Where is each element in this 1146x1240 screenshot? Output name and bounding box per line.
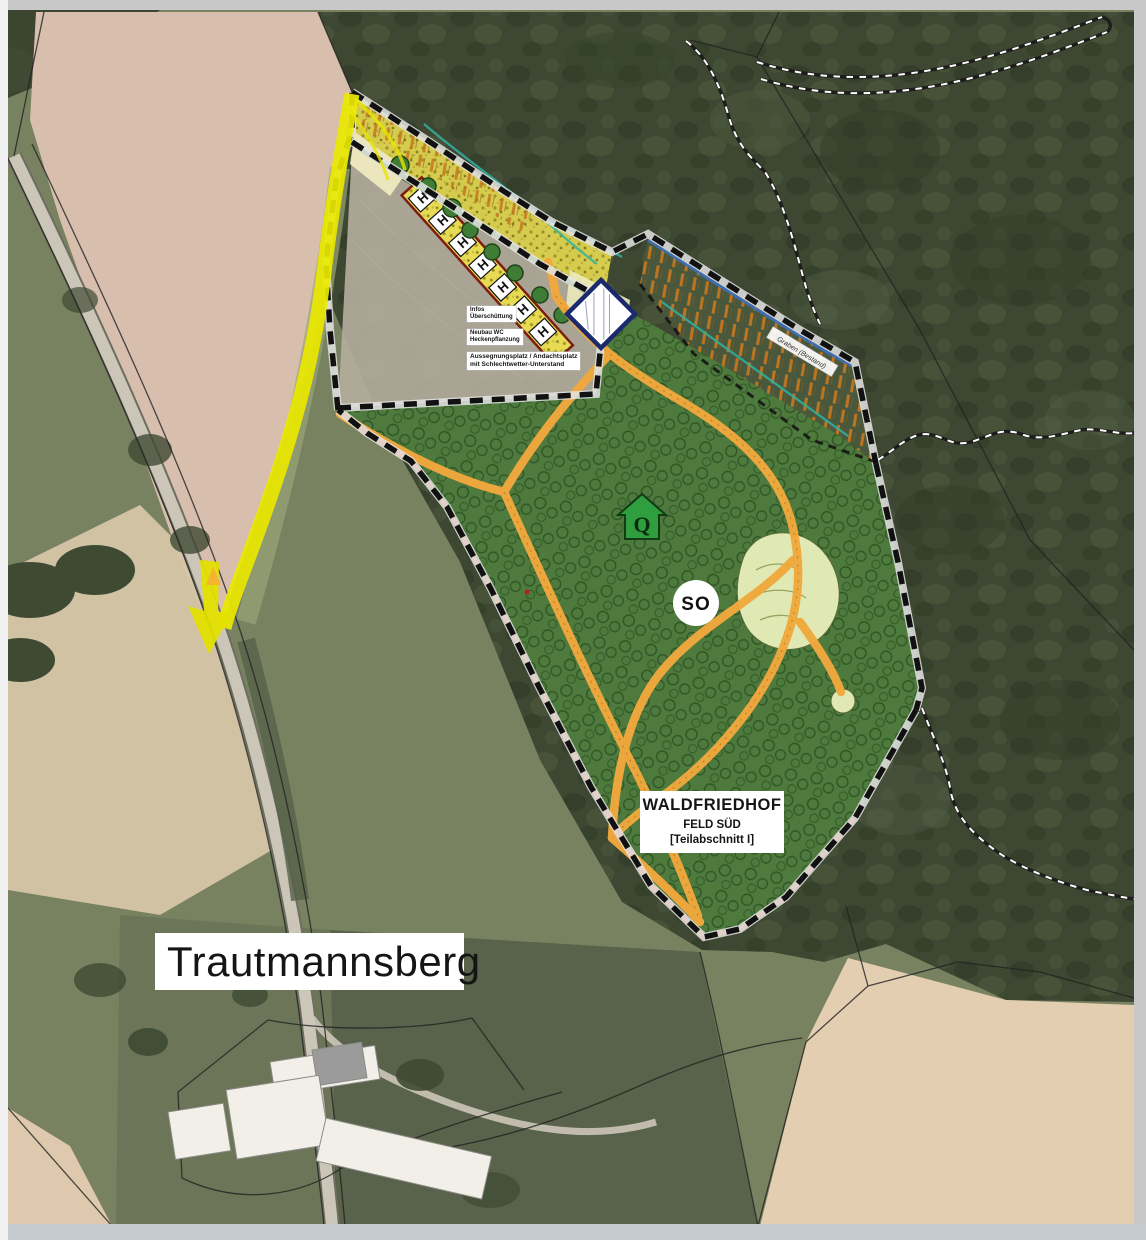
area-title: WALDFRIEDHOF <box>642 796 782 815</box>
note-line: Aussegnungsplatz / Andachtsplatz <box>470 353 577 361</box>
building-gray <box>312 1042 367 1085</box>
area-section: [Teilabschnitt I] <box>642 833 782 847</box>
page-margin-top <box>0 0 1146 10</box>
note-line: Überschüttung <box>470 314 513 321</box>
building <box>226 1075 330 1159</box>
plan-page: H H H H H H H <box>0 0 1146 1240</box>
page-margin-right <box>1134 0 1146 1240</box>
note-line: Heckenpflanzung <box>470 337 520 344</box>
note-line: mit Schlechtwetter-Unterstand <box>470 361 577 369</box>
annotation-note-1: Infos Überschüttung <box>467 306 516 322</box>
note-line: Neubau WC <box>470 330 520 337</box>
page-margin-left <box>0 0 8 1240</box>
so-badge: SO <box>673 580 719 626</box>
building <box>168 1103 231 1159</box>
area-title-box: WALDFRIEDHOF FELD SÜD [Teilabschnitt I] <box>640 791 784 853</box>
page-margin-bottom <box>0 1224 1146 1240</box>
aerial-plan-map: H H H H H H H <box>0 0 1146 1240</box>
place-name-label: Trautmannsberg <box>155 933 464 990</box>
so-badge-label: SO <box>681 594 710 615</box>
annotation-note-3: Aussegnungsplatz / Andachtsplatz mit Sch… <box>467 352 580 370</box>
q-marker-label: Q <box>633 512 650 537</box>
note-line: Infos <box>470 307 513 314</box>
annotation-note-2: Neubau WC Heckenpflanzung <box>467 329 523 345</box>
area-subtitle: FELD SÜD <box>642 818 782 833</box>
red-survey-mark <box>525 590 530 595</box>
